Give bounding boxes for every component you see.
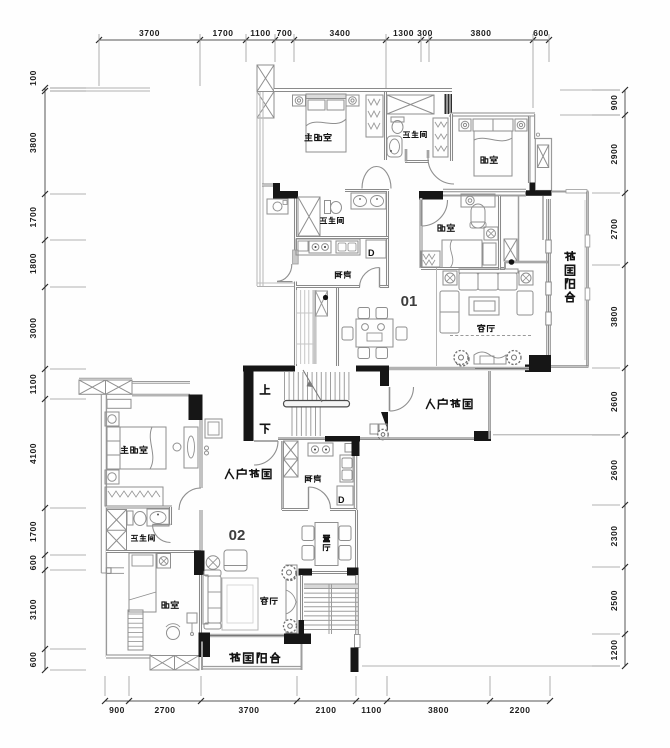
svg-text:600: 600 xyxy=(28,652,38,668)
svg-text:1100: 1100 xyxy=(361,705,381,715)
svg-text:2300: 2300 xyxy=(609,526,619,547)
svg-text:2600: 2600 xyxy=(609,391,619,412)
svg-text:3400: 3400 xyxy=(330,28,351,38)
svg-text:700: 700 xyxy=(277,28,293,38)
svg-text:100: 100 xyxy=(28,70,38,86)
svg-text:900: 900 xyxy=(109,705,125,715)
svg-text:3700: 3700 xyxy=(239,705,260,715)
svg-text:02: 02 xyxy=(229,527,246,544)
svg-text:300: 300 xyxy=(417,28,433,38)
svg-text:2700: 2700 xyxy=(155,705,176,715)
svg-text:3800: 3800 xyxy=(471,28,492,38)
svg-text:4100: 4100 xyxy=(28,443,38,464)
svg-text:1200: 1200 xyxy=(609,640,619,661)
svg-text:2900: 2900 xyxy=(609,144,619,165)
svg-text:3000: 3000 xyxy=(28,318,38,339)
svg-text:1300: 1300 xyxy=(393,28,414,38)
svg-text:900: 900 xyxy=(609,95,619,111)
svg-text:1100: 1100 xyxy=(250,28,270,38)
svg-text:2100: 2100 xyxy=(316,705,337,715)
svg-text:2700: 2700 xyxy=(609,219,619,240)
svg-text:600: 600 xyxy=(28,555,38,571)
svg-text:2500: 2500 xyxy=(609,590,619,611)
svg-text:1100: 1100 xyxy=(28,374,38,394)
svg-text:2600: 2600 xyxy=(609,460,619,481)
svg-text:3800: 3800 xyxy=(28,132,38,153)
svg-text:1700: 1700 xyxy=(213,28,234,38)
svg-text:3800: 3800 xyxy=(428,705,449,715)
svg-text:1800: 1800 xyxy=(28,253,38,274)
svg-text:1700: 1700 xyxy=(28,207,38,228)
svg-text:2200: 2200 xyxy=(510,705,531,715)
svg-text:3800: 3800 xyxy=(609,306,619,327)
svg-text:D: D xyxy=(368,248,375,258)
svg-text:600: 600 xyxy=(533,28,549,38)
svg-text:D: D xyxy=(338,495,345,505)
svg-text:1700: 1700 xyxy=(28,521,38,542)
svg-text:3700: 3700 xyxy=(139,28,160,38)
svg-text:3100: 3100 xyxy=(28,599,38,620)
svg-text:01: 01 xyxy=(401,293,418,310)
